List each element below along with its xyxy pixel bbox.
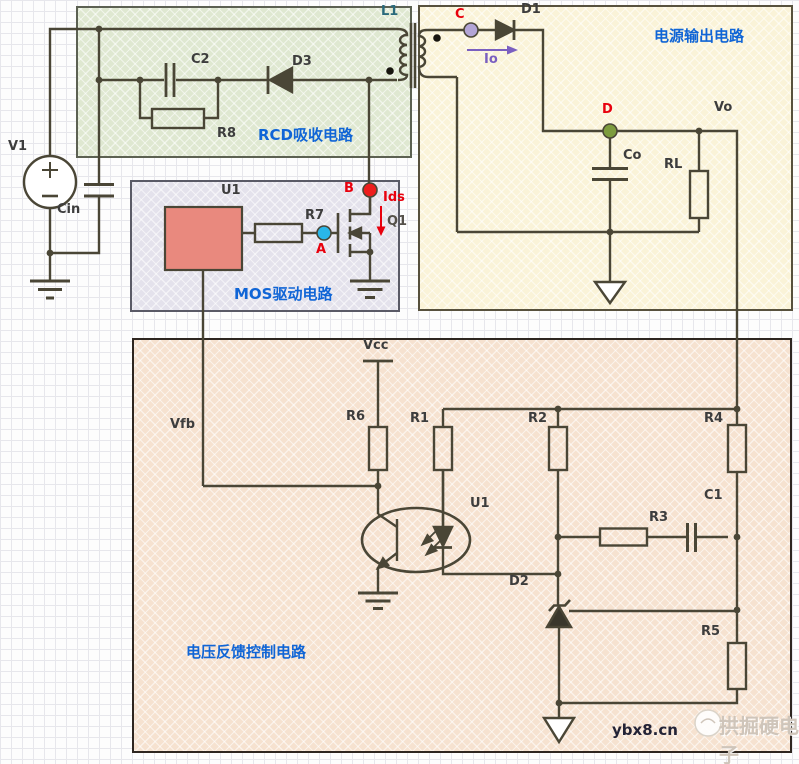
node-a-marker	[317, 226, 331, 240]
node-c-marker	[464, 23, 478, 37]
ids-current-arrow	[377, 206, 386, 236]
label-r3: R3	[649, 511, 668, 524]
zener-d2	[547, 574, 571, 718]
region-title-mos: MOS驱动电路	[234, 287, 332, 302]
ground-output	[595, 282, 625, 303]
schematic-canvas: V1 Cin C2 D3 R8 RCD吸收电路 L1 C D1 Io 电源输出电…	[0, 0, 799, 764]
transformer-l1	[386, 23, 464, 88]
ground-input	[30, 281, 70, 298]
resistor-r5	[559, 643, 746, 703]
label-cin: Cin	[57, 203, 80, 216]
label-d1: D1	[521, 3, 541, 16]
label-co: Co	[623, 149, 641, 162]
label-l1: L1	[381, 5, 398, 18]
node-d-marker	[603, 124, 617, 138]
label-ids: Ids	[383, 191, 405, 204]
label-d3: D3	[292, 55, 312, 68]
resistor-r8	[140, 80, 218, 128]
phase-dot-primary	[386, 67, 394, 75]
region-title-feedback: 电压反馈控制电路	[186, 645, 306, 660]
label-io: Io	[484, 53, 498, 66]
label-node-c: C	[455, 8, 465, 21]
resistor-r6	[369, 427, 387, 514]
mosfet-q1	[338, 197, 370, 257]
label-vfb: Vfb	[170, 418, 195, 431]
ground-mosfet	[350, 281, 390, 298]
label-node-b: B	[344, 182, 354, 195]
capacitor-cin	[50, 29, 114, 253]
schematic-artwork	[0, 0, 799, 764]
wire-output-return	[457, 77, 699, 232]
label-u1-opto: U1	[470, 497, 490, 510]
label-r4: R4	[704, 412, 723, 425]
label-u1-driver: U1	[221, 184, 241, 197]
voltage-source-v1	[24, 156, 76, 208]
watermark-brand: 拱掘硬电子	[719, 710, 799, 764]
junction-dots	[47, 26, 741, 707]
watermark-site: ybx8.cn	[612, 721, 678, 739]
watermark-logo	[695, 710, 721, 736]
label-r6: R6	[346, 410, 365, 423]
ground-optocoupler	[358, 593, 398, 609]
driver-ic-u1	[165, 207, 242, 270]
label-rl: RL	[664, 158, 682, 171]
resistor-r2	[549, 409, 567, 574]
resistor-r3	[558, 529, 687, 546]
label-vcc: Vcc	[363, 339, 388, 352]
label-r2: R2	[528, 412, 547, 425]
diode-d1	[496, 20, 514, 40]
resistor-rl	[690, 131, 708, 232]
vcc-supply	[363, 361, 393, 427]
diode-d3	[268, 66, 292, 94]
label-d2: D2	[509, 575, 529, 588]
label-vo: Vo	[714, 101, 732, 114]
label-c2: C2	[191, 53, 210, 66]
phase-dot-secondary	[433, 34, 441, 42]
label-q1: Q1	[387, 215, 407, 228]
capacitor-c2	[166, 63, 174, 97]
capacitor-c1	[688, 523, 729, 552]
node-b-marker	[363, 183, 377, 197]
region-title-output: 电源输出电路	[654, 29, 744, 44]
wire-output-rail	[514, 30, 737, 409]
label-r5: R5	[701, 625, 720, 638]
ground-feedback	[544, 718, 574, 742]
label-r7: R7	[305, 209, 324, 222]
label-r8: R8	[217, 127, 236, 140]
label-r1: R1	[410, 412, 429, 425]
region-title-rcd: RCD吸收电路	[258, 128, 353, 143]
label-c1: C1	[704, 489, 723, 502]
label-node-a: A	[316, 243, 326, 256]
label-node-d: D	[602, 103, 613, 116]
label-v1: V1	[8, 140, 27, 153]
